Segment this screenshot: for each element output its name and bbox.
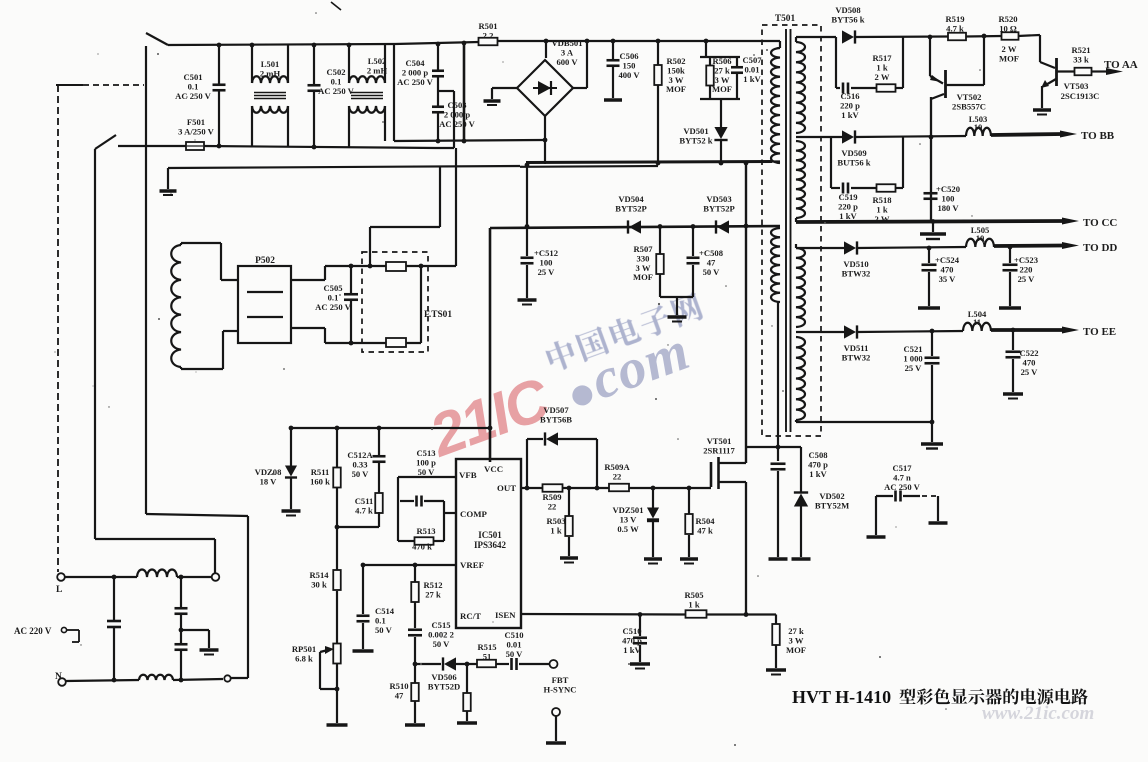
svg-text:1 kV: 1 kV <box>623 645 641 655</box>
svg-text:N: N <box>55 671 62 682</box>
svg-text:BTW32: BTW32 <box>842 268 871 278</box>
svg-text:P502: P502 <box>255 256 275 266</box>
svg-text:ISEN: ISEN <box>495 610 516 620</box>
svg-text:22: 22 <box>613 471 622 481</box>
svg-text:470 k: 470 k <box>412 542 432 552</box>
svg-text:6.8 k: 6.8 k <box>295 653 313 663</box>
svg-text:51: 51 <box>483 651 492 661</box>
svg-text:160 k: 160 k <box>310 476 330 486</box>
svg-text:COMP: COMP <box>460 509 487 519</box>
svg-text:AC 250 V: AC 250 V <box>315 302 351 312</box>
svg-text:2 mH: 2 mH <box>260 68 281 78</box>
svg-text:BYT52D: BYT52D <box>428 681 460 691</box>
svg-text:2 W: 2 W <box>875 72 890 82</box>
svg-text:BUT56 k: BUT56 k <box>837 157 870 167</box>
svg-text:AC 250 V: AC 250 V <box>175 91 211 101</box>
svg-text:50 V: 50 V <box>418 467 436 477</box>
svg-text:www.21ic.com: www.21ic.com <box>982 703 1094 724</box>
svg-text:H-SYNC: H-SYNC <box>544 684 577 694</box>
svg-text:BTW32: BTW32 <box>842 352 871 362</box>
svg-text:50 V: 50 V <box>506 649 524 659</box>
svg-text:MOF: MOF <box>712 84 732 94</box>
svg-text:HVT H-1410: HVT H-1410 <box>792 687 891 707</box>
svg-text:10: 10 <box>976 233 985 243</box>
svg-text:TO EE: TO EE <box>1083 326 1116 338</box>
svg-text:33 k: 33 k <box>1073 55 1089 65</box>
svg-text:AC 250 V: AC 250 V <box>397 77 433 87</box>
svg-text:R513: R513 <box>416 526 435 536</box>
svg-text:4.7 k: 4.7 k <box>946 23 964 33</box>
svg-text:180 V: 180 V <box>937 203 959 213</box>
svg-text:600 V: 600 V <box>556 57 578 67</box>
svg-text:35 V: 35 V <box>939 274 957 284</box>
svg-text:MOF: MOF <box>666 84 686 94</box>
svg-text:1 kV: 1 kV <box>809 469 827 479</box>
svg-text:T501: T501 <box>775 14 796 24</box>
svg-text:BYT52P: BYT52P <box>615 203 647 213</box>
svg-text:25 V: 25 V <box>1018 274 1036 284</box>
svg-text:VCC: VCC <box>484 464 503 474</box>
svg-text:2.2: 2.2 <box>483 30 494 40</box>
svg-text:1 k: 1 k <box>688 599 699 609</box>
svg-text:MOF: MOF <box>633 272 653 282</box>
svg-text:VFB: VFB <box>459 470 477 480</box>
svg-text:BYT56 k: BYT56 k <box>831 14 864 24</box>
svg-text:OUT: OUT <box>497 483 516 493</box>
svg-text:IPS3642: IPS3642 <box>474 540 507 550</box>
svg-text:27 k: 27 k <box>425 589 441 599</box>
svg-text:2 mH: 2 mH <box>367 65 388 75</box>
svg-text:3 A/250 V: 3 A/250 V <box>178 126 214 136</box>
svg-text:25 V: 25 V <box>905 363 923 373</box>
svg-text:AC 250 V: AC 250 V <box>884 482 920 492</box>
svg-text:10 Ω: 10 Ω <box>999 23 1017 33</box>
svg-text:L: L <box>56 584 62 595</box>
svg-text:F.TS01: F.TS01 <box>424 310 452 320</box>
svg-text:50 V: 50 V <box>433 639 451 649</box>
svg-text:AC 220 V: AC 220 V <box>14 626 52 636</box>
svg-text:22: 22 <box>548 501 557 511</box>
svg-text:2SR1117: 2SR1117 <box>703 445 735 455</box>
svg-text:50 V: 50 V <box>375 625 393 635</box>
svg-text:R521: R521 <box>1071 45 1090 55</box>
svg-text:47: 47 <box>395 690 404 700</box>
svg-text:1 kV: 1 kV <box>839 211 857 221</box>
svg-text:1 kV: 1 kV <box>743 74 761 84</box>
svg-text:2SB557C: 2SB557C <box>952 101 986 111</box>
svg-text:1 k: 1 k <box>550 525 561 535</box>
svg-text:BYT56B: BYT56B <box>540 414 572 424</box>
svg-text:1 kV: 1 kV <box>841 110 859 120</box>
svg-text:0.5 W: 0.5 W <box>617 524 639 534</box>
svg-text:BYT52 k: BYT52 k <box>679 135 712 145</box>
svg-text:IC501: IC501 <box>478 530 502 540</box>
svg-text:2SC1913C: 2SC1913C <box>1061 91 1100 101</box>
svg-text:BYT52P: BYT52P <box>703 203 735 213</box>
svg-text:MOF: MOF <box>786 645 806 655</box>
svg-text:10: 10 <box>974 122 983 132</box>
svg-text:TO CC: TO CC <box>1083 217 1117 229</box>
svg-text:400 V: 400 V <box>618 70 640 80</box>
svg-text:4.7 k: 4.7 k <box>355 505 373 515</box>
svg-text:50 V: 50 V <box>352 469 370 479</box>
svg-text:RC/T: RC/T <box>460 611 481 621</box>
svg-text:47 k: 47 k <box>697 525 713 535</box>
svg-text:30 k: 30 k <box>311 579 327 589</box>
svg-text:TO AA: TO AA <box>1104 59 1138 71</box>
svg-text:BTY52M: BTY52M <box>815 500 849 510</box>
svg-text:25 V: 25 V <box>538 267 556 277</box>
svg-text:VREF: VREF <box>460 560 484 570</box>
svg-text:18 V: 18 V <box>260 476 278 486</box>
svg-text:VT503: VT503 <box>1064 81 1089 91</box>
svg-text:TO BB: TO BB <box>1081 130 1115 142</box>
svg-text:11: 11 <box>973 317 981 327</box>
svg-text:TO DD: TO DD <box>1083 242 1117 254</box>
svg-text:AC 250 V: AC 250 V <box>318 86 354 96</box>
svg-text:25 V: 25 V <box>1021 367 1039 377</box>
svg-text:MOF: MOF <box>999 53 1019 63</box>
svg-text:50 V: 50 V <box>703 267 721 277</box>
svg-text:AC 250 V: AC 250 V <box>439 119 475 129</box>
